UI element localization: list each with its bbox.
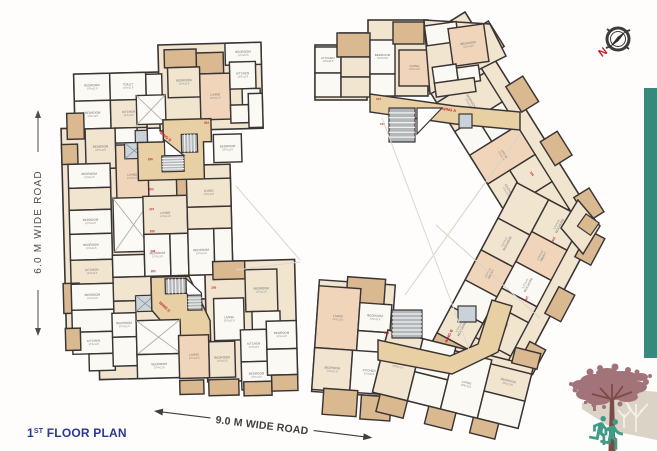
svg-text:10'0x11'6: 10'0x11'6 <box>217 358 228 362</box>
svg-text:10'0x11'6: 10'0x11'6 <box>248 345 259 349</box>
svg-text:10'0x11'6: 10'0x11'6 <box>327 369 339 374</box>
svg-text:207: 207 <box>149 207 154 211</box>
svg-text:208: 208 <box>150 249 155 253</box>
svg-text:204: 204 <box>204 121 209 125</box>
svg-text:10'0x11'6: 10'0x11'6 <box>160 214 171 218</box>
svg-text:206: 206 <box>148 157 153 161</box>
svg-text:10'0x11'6: 10'0x11'6 <box>84 175 95 179</box>
svg-text:10'0x11'6: 10'0x11'6 <box>276 334 287 338</box>
svg-text:10'0x11'6: 10'0x11'6 <box>86 246 97 250</box>
svg-text:10'0x11'6: 10'0x11'6 <box>332 317 344 322</box>
svg-text:10'0x11'6: 10'0x11'6 <box>152 254 163 258</box>
svg-text:9.0 M WIDE ROAD: 9.0 M WIDE ROAD <box>215 414 309 437</box>
svg-text:201: 201 <box>151 269 156 273</box>
svg-text:10'0x11'6: 10'0x11'6 <box>256 289 267 293</box>
svg-text:10'0x11'6: 10'0x11'6 <box>154 365 165 369</box>
svg-text:1ST FLOOR PLAN: 1ST FLOOR PLAN <box>27 426 127 440</box>
svg-text:10'0x11'6: 10'0x11'6 <box>323 59 334 63</box>
svg-text:10'0x11'6: 10'0x11'6 <box>87 296 98 300</box>
svg-text:10'0x11'6: 10'0x11'6 <box>189 356 200 360</box>
svg-text:10'0x11'6: 10'0x11'6 <box>127 176 138 180</box>
svg-text:10'0x11'6: 10'0x11'6 <box>88 342 99 346</box>
svg-text:10'0x11'6: 10'0x11'6 <box>119 324 130 328</box>
svg-text:10'0x11'6: 10'0x11'6 <box>85 221 96 225</box>
svg-text:10'0x11'6: 10'0x11'6 <box>238 53 249 57</box>
svg-text:10'0x11'6: 10'0x11'6 <box>237 74 248 78</box>
svg-text:202: 202 <box>150 229 155 233</box>
svg-text:10'0x11'6: 10'0x11'6 <box>123 85 134 89</box>
svg-text:10'0x11'6: 10'0x11'6 <box>369 317 381 322</box>
svg-text:10'0x11'6: 10'0x11'6 <box>123 113 134 117</box>
svg-text:10'0x11'6: 10'0x11'6 <box>251 375 262 379</box>
svg-text:104: 104 <box>376 97 381 101</box>
svg-text:10'0x11'6: 10'0x11'6 <box>364 371 376 376</box>
svg-text:10'0x11'6: 10'0x11'6 <box>87 114 98 118</box>
svg-text:6.0 M WIDE ROAD: 6.0 M WIDE ROAD <box>33 170 44 274</box>
svg-text:10'0x11'6: 10'0x11'6 <box>95 148 106 152</box>
svg-text:10'0x11'6: 10'0x11'6 <box>87 86 98 90</box>
svg-text:10'0x11'6: 10'0x11'6 <box>196 251 207 255</box>
svg-text:10'0x11'6: 10'0x11'6 <box>178 81 189 85</box>
svg-text:205: 205 <box>211 286 216 290</box>
svg-text:10'0x11'6: 10'0x11'6 <box>86 271 97 275</box>
svg-text:10'0x11'6: 10'0x11'6 <box>203 192 214 196</box>
svg-text:10'0x11'6: 10'0x11'6 <box>377 56 388 60</box>
svg-text:10'0x11'6: 10'0x11'6 <box>210 96 221 100</box>
svg-text:106: 106 <box>384 331 389 335</box>
svg-text:203: 203 <box>149 187 154 191</box>
svg-text:10'0x11'6: 10'0x11'6 <box>222 147 233 151</box>
svg-text:10'0x11'6: 10'0x11'6 <box>409 67 420 71</box>
svg-text:10'0x11'6: 10'0x11'6 <box>224 318 235 322</box>
